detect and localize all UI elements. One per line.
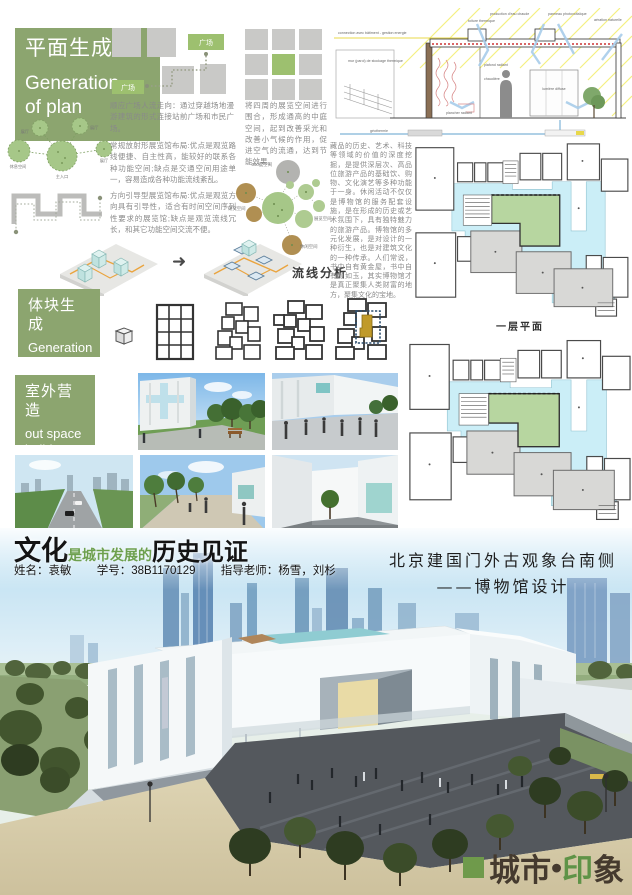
student-name: 姓名：袁敏: [14, 565, 72, 577]
floor-plan-level-2: [404, 333, 632, 527]
radial-layout-diagram: 展厅 展厅 展厅 休息空间 主入口: [4, 116, 116, 186]
paragraph-museum-culture: 藏品的历史、艺术、科技等领域的价值的深度挖掘，是提供深层次、高品位旅游产品的基础…: [330, 142, 412, 300]
logo-square-icon: [463, 857, 484, 878]
radial-hall3-label: 展厅: [100, 158, 108, 164]
logo-xiang-text: 象: [593, 845, 624, 890]
bodygen-shape-2: [272, 299, 328, 363]
body-title-en2: of body: [28, 356, 90, 372]
courtyard-center-cell: [272, 54, 295, 75]
student-id: 学号：38B1170129: [97, 565, 196, 577]
credit-line: 姓名：袁敏 学号：38B1170129 指导老师：杨雪，刘杉: [14, 562, 358, 578]
floor-plan-caption: 一层平面: [408, 318, 632, 333]
outspace-title-zh: 室外营造: [25, 383, 85, 421]
radial-hall2-label: 展厅: [90, 125, 98, 131]
sustainable-section-drawing: connection avec bâtiment - gestion energ…: [330, 8, 632, 140]
bubble-360-label: 360度空间: [252, 161, 273, 168]
title-city-development: 是城市发展的: [68, 547, 152, 563]
label-eau-chaude: production d'eau chaude: [490, 12, 529, 16]
bubble-exhibit-label: 展览空间: [314, 215, 332, 222]
project-title-line2: ——博物馆设计: [378, 574, 628, 600]
plaza-bottom-label: 广场: [121, 83, 135, 92]
render-park-bench: [138, 373, 265, 450]
plaza-flow-diagram: 广场 广场: [110, 26, 234, 98]
iso-flow-diagram-1: [52, 232, 164, 296]
label-plafond: plafond radiant: [484, 63, 508, 67]
radial-entry-label: 主入口: [56, 173, 69, 179]
radial-hall1-label: 展厅: [21, 129, 29, 135]
city-impression-logo: 城市 • 印 象: [463, 845, 624, 890]
floor-plan-level-1: [408, 142, 632, 318]
label-photovoltaique: panneau photovoltaïque: [548, 12, 587, 16]
paragraph-plaza-flow: 顺应广场人流走向：通过穿越场地漫游建筑的形式连接站前广场和市民广场。: [110, 100, 234, 134]
render-courtyard: [272, 455, 398, 530]
radial-rest-label: 休息空间: [10, 163, 27, 170]
paragraph-guided-layout: 方向引导型展览馆布局:优点是观览方向具有引导性，适合有时间空间序列性要求的展览馆…: [110, 190, 236, 235]
bodygen-cube: [113, 326, 135, 346]
logo-yin-text: 印: [562, 845, 593, 890]
project-title-line1: 北京建国门外古观象台南侧: [378, 548, 628, 574]
bubble-leisure-label: 休闲空间: [300, 243, 318, 250]
bodygen-shape-1: [212, 301, 264, 363]
label-geothermie: géothermie: [370, 129, 388, 133]
logo-dot: •: [551, 850, 562, 886]
render-entry-plaza: [272, 373, 398, 450]
bodygen-grid: [155, 303, 195, 361]
logo-city-text: 城市: [489, 845, 551, 890]
panel-outspace-header: 室外营造 out space build: [15, 375, 95, 445]
label-lumiere: lumière diffuse: [542, 87, 565, 91]
plaza-top-label: 广场: [199, 38, 213, 47]
transform-arrow-icon: ➜: [172, 252, 186, 272]
bubble-research-label: 研究空间: [228, 205, 246, 212]
render-road: [15, 455, 133, 530]
label-connection: connection avec bâtiment - gestion energ…: [338, 31, 407, 35]
outspace-title-en1: out space: [25, 426, 85, 442]
paragraph-radial-layout: 常规放射形展览馆布局:优点是观览路线便捷、自主性高，能较好的联系各种功能空间;缺…: [110, 140, 236, 185]
label-plancher: plancher radiant: [446, 111, 472, 115]
label-chaudiere: chaudière: [484, 77, 500, 81]
label-aeration: aération naturelle: [594, 18, 622, 22]
panel-body-generation-header: 体块生成 Generation of body: [18, 289, 100, 357]
bodygen-shape-final: [332, 297, 392, 363]
render-promenade: [140, 455, 265, 530]
project-title: 北京建国门外古观象台南侧 ——博物馆设计: [378, 548, 628, 599]
label-mur: mur (paroi) de stockage thermique: [348, 59, 403, 63]
architecture-poster: 平面生成 Generation of plan 广场 广场 顺应广场人流走向：通…: [0, 0, 632, 895]
tutor-names: 指导老师：杨雪，刘杉: [221, 565, 336, 577]
body-title-en1: Generation: [28, 340, 90, 356]
label-toiture: toiture thermique: [468, 19, 495, 23]
program-bubble-diagram: 360度空间 研究空间 展览空间 休闲空间: [226, 156, 334, 266]
courtyard-grid-diagram: [245, 29, 322, 100]
body-title-zh: 体块生成: [28, 297, 90, 335]
